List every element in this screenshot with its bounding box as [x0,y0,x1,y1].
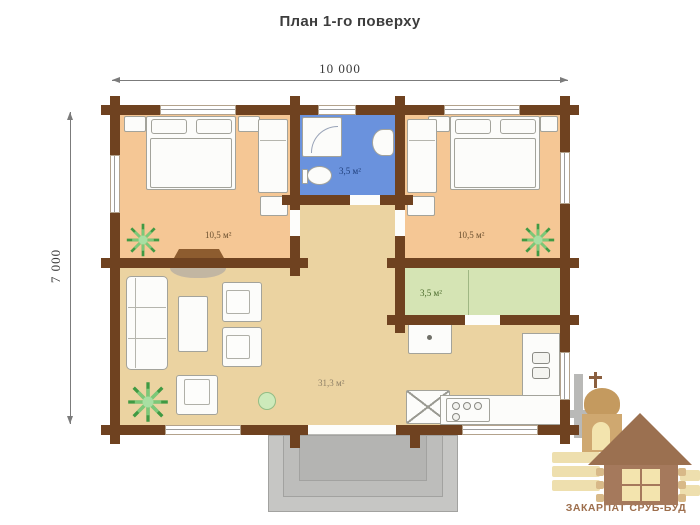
wardrobe [407,119,437,193]
window [165,425,241,435]
log-joint [395,96,405,105]
dimension-line-vertical [70,112,71,424]
wall-pantry-bottom [500,315,560,325]
window [560,352,570,400]
hall-floor [300,205,395,268]
log-end [596,494,604,502]
pillow [151,119,187,134]
area-label-bathroom: 3,5 м² [339,166,361,176]
wall-middle-left [120,258,290,268]
log-stack [552,466,600,477]
sofa [126,276,168,370]
entrance-door-opening [308,425,396,435]
log-joint [395,325,405,333]
log-joint [101,258,110,268]
small-plant-icon [258,392,276,410]
nightstand [238,116,260,132]
pillow [455,119,491,134]
log-end [596,481,604,489]
log-joint [387,258,395,268]
logo-house-window [622,469,660,501]
fireplace-bedroom-side [174,249,224,258]
area-label-living-room: 31,3 м² [318,378,344,388]
sink [372,129,394,156]
door-opening-bathroom [350,195,380,205]
coffee-table [178,296,208,352]
wall-bedroom-right-hall [395,235,405,325]
log-stack [552,480,600,491]
log-end [678,481,686,489]
toilet [307,166,332,185]
church-cross-icon [594,372,597,388]
stove [446,398,490,422]
pantry-divider [468,270,469,315]
door-opening-bedroom-left [290,210,300,236]
wall-bedroom-left-hall [290,115,300,210]
window [560,152,570,204]
armchair [176,375,218,415]
page-title: План 1-го поверху [0,13,700,30]
wall-bedroom-left-hall [290,235,300,268]
log-joint [405,195,413,205]
kitchen-table [408,322,452,354]
log-end [596,468,604,476]
log-joint [570,105,579,115]
log-joint [110,435,120,444]
log-joint [290,96,300,105]
porch-post [290,435,300,448]
wall-bathroom-bottom [300,195,350,205]
log-joint [110,96,120,105]
bed-blanket [454,138,536,188]
wardrobe [258,119,288,193]
plant-icon [520,222,556,258]
door-opening-pantry [465,315,500,325]
log-joint [290,268,300,276]
dimension-width-label: 10 000 [140,61,540,77]
area-label-pantry: 3,5 м² [420,288,442,298]
porch-step-inner [299,435,427,481]
wall-middle-right [405,258,560,268]
log-joint [387,315,395,325]
dimension-line-horizontal [112,80,568,81]
log-end [678,468,686,476]
shower [302,117,342,157]
area-label-bedroom-left: 10,5 м² [205,230,231,240]
pillow [196,119,232,134]
armchair [222,282,262,322]
log-joint [560,96,570,105]
area-label-bedroom-right: 10,5 м² [458,230,484,240]
wall-pantry-bottom [405,315,465,325]
floor-plan: План 1-го поверху 10 000 7 000 [0,0,700,525]
bed-blanket [150,138,232,188]
log-joint [570,425,579,435]
logo-house-roof [588,413,692,465]
log-joint [570,315,579,325]
window [462,425,538,435]
wall-bedroom-right-hall [395,115,405,210]
window [110,155,120,213]
log-joint [101,105,110,115]
pillow [500,119,536,134]
nightstand [124,116,146,132]
log-joint [101,425,110,435]
plant-icon [126,380,170,424]
window [160,105,236,115]
log-end [678,494,686,502]
log-joint [560,435,570,444]
nightstand [540,116,558,132]
porch-post [410,435,420,448]
log-joint [570,258,579,268]
door-opening-bedroom-right [395,210,405,236]
log-joint [300,258,308,268]
wall-bathroom-bottom [380,195,395,205]
dimension-height-label: 7 000 [48,226,64,306]
church-cross-icon [589,376,602,379]
window [444,105,520,115]
plant-icon [125,222,161,258]
window [318,105,356,115]
armchair [222,327,262,367]
log-joint [282,195,290,205]
